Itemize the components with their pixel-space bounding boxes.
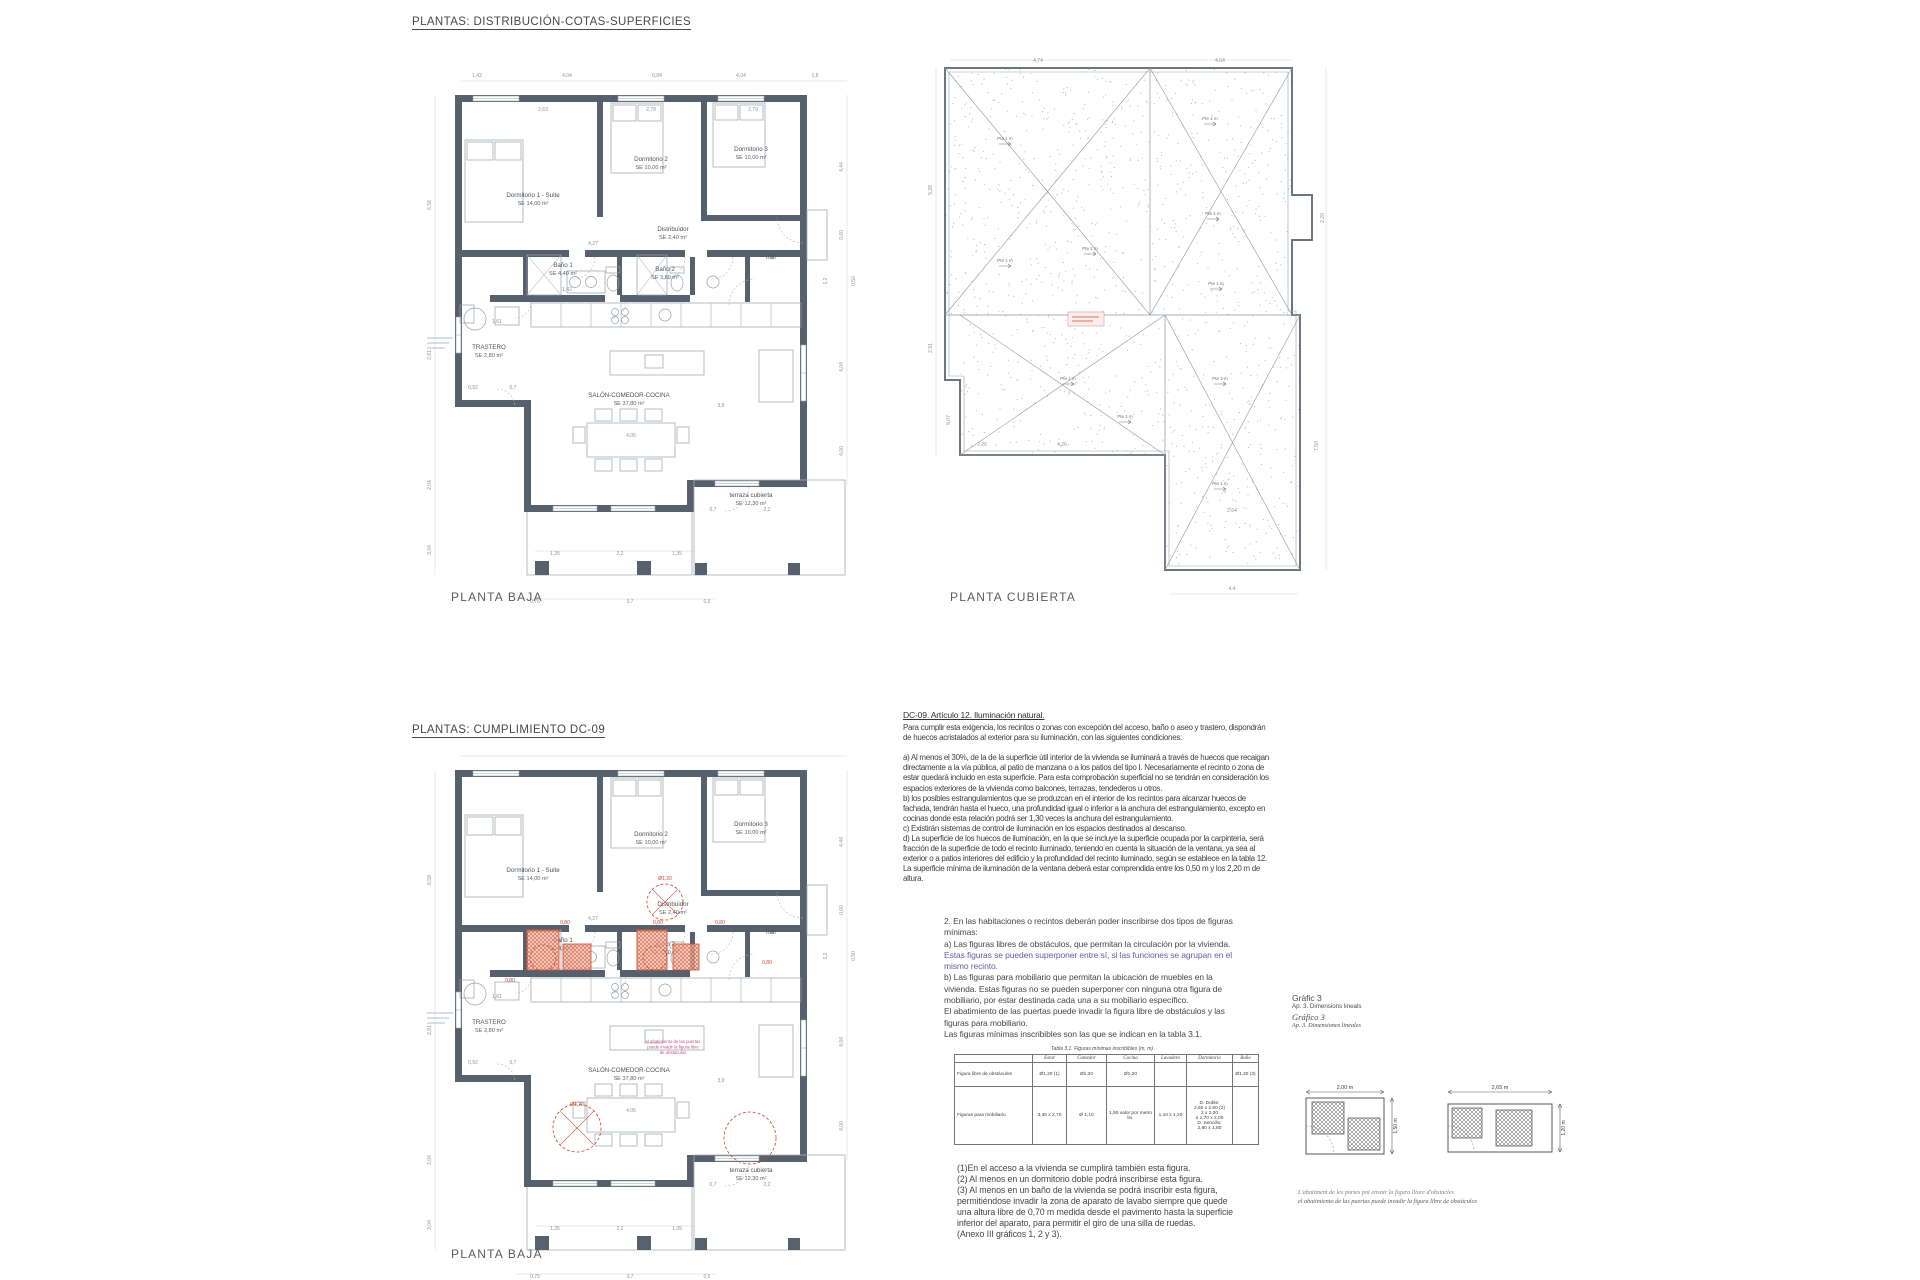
stipple-dot xyxy=(1186,168,1187,169)
stipple-dot xyxy=(1160,166,1161,167)
note-line: (3) Al menos en un baño de la vivienda s… xyxy=(957,1185,1291,1196)
dimension-label: 2,79 xyxy=(748,107,758,113)
roof-outline xyxy=(945,68,1312,570)
dc09-line: estar quedará incluido en esta superfici… xyxy=(903,773,1315,783)
stipple-dot xyxy=(1271,476,1272,477)
stipple-dot xyxy=(1136,144,1137,145)
stipple-dot xyxy=(1025,293,1026,294)
table-header: Estar xyxy=(1033,1055,1067,1063)
plan1-caption: PLANTA BAJA xyxy=(451,590,543,604)
room-name: Dormitorio 2 xyxy=(634,831,668,838)
stipple-dot xyxy=(1181,369,1182,370)
stipple-dot xyxy=(1157,229,1158,230)
stipple-dot xyxy=(1249,200,1250,201)
stipple-dot xyxy=(1242,212,1243,213)
stipple-dot xyxy=(1250,127,1251,128)
stipple-dot xyxy=(1125,291,1126,292)
table-header xyxy=(955,1055,1033,1063)
wall xyxy=(701,770,707,896)
stipple-dot xyxy=(1079,372,1080,373)
roof-hip-line xyxy=(1233,315,1301,443)
stipple-dot xyxy=(951,166,952,167)
stipple-dot xyxy=(1229,473,1230,474)
figuras-line: 2. En las habitaciones o recintos deberá… xyxy=(944,916,1282,927)
stipple-dot xyxy=(1127,350,1128,351)
stipple-dot xyxy=(1173,402,1174,403)
stipple-dot xyxy=(1294,456,1295,457)
stipple-dot xyxy=(1252,163,1253,164)
stipple-dot xyxy=(1176,532,1177,533)
stipple-dot xyxy=(1193,376,1194,377)
stipple-dot xyxy=(1214,398,1215,399)
stipple-dot xyxy=(1103,176,1104,177)
stipple-dot xyxy=(1257,289,1258,290)
roof-red-note-box xyxy=(1068,312,1104,326)
room-name: Baño 1 xyxy=(553,262,573,269)
stipple-dot xyxy=(1207,501,1208,502)
stipple-dot xyxy=(978,393,979,394)
stipple-dot xyxy=(1032,185,1033,186)
stipple-dot xyxy=(1164,421,1165,422)
stipple-dot xyxy=(1195,429,1196,430)
stipple-dot xyxy=(1189,451,1190,452)
stipple-dot xyxy=(1285,448,1286,449)
dimension-label: 3,04 xyxy=(427,1220,433,1230)
stipple-dot xyxy=(971,445,972,446)
stipple-dot xyxy=(1214,361,1215,362)
stipple-dot xyxy=(1106,127,1107,128)
stipple-dot xyxy=(1106,156,1107,157)
mobiliario-square xyxy=(1348,1118,1380,1150)
stipple-dot xyxy=(951,313,952,314)
stipple-dot xyxy=(1279,357,1280,358)
dimension-label: 1,2 xyxy=(823,277,829,284)
stipple-dot xyxy=(1068,191,1069,192)
stipple-dot xyxy=(1152,425,1153,426)
stipple-dot xyxy=(1069,391,1070,392)
stipple-dot xyxy=(1050,273,1051,274)
stipple-dot xyxy=(1229,393,1230,394)
stipple-dot xyxy=(1234,79,1235,80)
stipple-dot xyxy=(1057,149,1058,150)
stipple-dot xyxy=(1140,259,1141,260)
stipple-dot xyxy=(1044,327,1045,328)
dc09-line: a) Al menos el 30%, de la de la superfic… xyxy=(903,753,1315,763)
stipple-dot xyxy=(1038,449,1039,450)
figuras-line: Las figuras mínimas inscribibles son las… xyxy=(944,1029,1282,1040)
stipple-dot xyxy=(1142,292,1143,293)
mini-figures-drawing: 2,00 m1,50 m2,65 m1,20 m xyxy=(1298,1078,1582,1184)
stipple-dot xyxy=(1265,360,1266,361)
stipple-dot xyxy=(1017,362,1018,363)
stipple-dot xyxy=(1009,285,1010,286)
planta-cubierta-drawing: Pte 1 mPte 1 mPte 1 mPte 1 mPte 1 mPte 1… xyxy=(920,50,1340,610)
stipple-dot xyxy=(1094,448,1095,449)
wall xyxy=(800,95,807,487)
stipple-dot xyxy=(1224,527,1225,528)
furniture xyxy=(620,459,637,471)
stipple-dot xyxy=(976,251,977,252)
stipple-dot xyxy=(1034,158,1035,159)
stipple-dot xyxy=(1112,122,1113,123)
stipple-dot xyxy=(1152,259,1153,260)
furniture xyxy=(715,105,738,120)
stipple-dot xyxy=(1170,227,1171,228)
stipple-dot xyxy=(1269,151,1270,152)
stipple-dot xyxy=(1260,187,1261,188)
stipple-dot xyxy=(1001,384,1002,385)
stipple-dot xyxy=(1116,312,1117,313)
stipple-dot xyxy=(1262,127,1263,128)
stipple-dot xyxy=(1130,160,1131,161)
stipple-dot xyxy=(1212,456,1213,457)
stipple-dot xyxy=(1125,125,1126,126)
stipple-dot xyxy=(1272,297,1273,298)
stipple-dot xyxy=(1237,268,1238,269)
magenta-note-line: de obstáculos xyxy=(660,1050,687,1055)
stipple-dot xyxy=(1082,165,1083,166)
dimension-label: 1,61 xyxy=(492,319,502,325)
stipple-dot xyxy=(1047,332,1048,333)
stipple-dot xyxy=(960,213,961,214)
stipple-dot xyxy=(1209,557,1210,558)
stipple-dot xyxy=(1038,263,1039,264)
table-header: Comedor xyxy=(1067,1055,1107,1063)
stipple-dot xyxy=(1080,138,1081,139)
stipple-dot xyxy=(1277,547,1278,548)
slope-label: Pte 1 m xyxy=(1212,376,1228,381)
mobiliario-square xyxy=(1452,1108,1482,1138)
stipple-dot xyxy=(1226,72,1227,73)
stipple-dot xyxy=(1263,72,1264,73)
stipple-dot xyxy=(1170,555,1171,556)
stipple-dot xyxy=(1192,349,1193,350)
stipple-dot xyxy=(1059,153,1060,154)
dc09-line: c) Existirán sistemas de control de ilum… xyxy=(903,824,1315,834)
stipple-dot xyxy=(1179,405,1180,406)
furniture xyxy=(460,305,474,323)
stipple-dot xyxy=(1179,554,1180,555)
wall xyxy=(490,295,605,302)
stipple-dot xyxy=(1141,158,1142,159)
room-name: Distribuidor xyxy=(657,901,688,908)
stipple-dot xyxy=(1282,503,1283,504)
stipple-dot xyxy=(1247,402,1248,403)
figuras-line: Estas figuras se pueden superponer entre… xyxy=(944,950,1282,961)
wall xyxy=(800,770,807,1162)
stipple-dot xyxy=(963,157,964,158)
stipple-dot xyxy=(1042,180,1043,181)
stipple-dot xyxy=(1032,452,1033,453)
door-swing xyxy=(725,487,749,511)
stipple-dot xyxy=(1063,281,1064,282)
furniture xyxy=(467,817,493,835)
stipple-dot xyxy=(1284,257,1285,258)
stipple-dot xyxy=(1000,202,1001,203)
stipple-dot xyxy=(1144,180,1145,181)
notes-block: (1)En el acceso a la vivienda se cumplir… xyxy=(957,1163,1291,1240)
stipple-dot xyxy=(1209,530,1210,531)
stipple-dot xyxy=(1075,123,1076,124)
stipple-dot xyxy=(984,244,985,245)
stipple-dot xyxy=(1112,101,1113,102)
room-name: hall xyxy=(766,254,776,261)
furniture xyxy=(587,423,675,457)
stipple-dot xyxy=(1177,551,1178,552)
stipple-dot xyxy=(1262,123,1263,124)
furniture xyxy=(495,817,521,835)
stipple-dot xyxy=(1102,119,1103,120)
stipple-dot xyxy=(977,361,978,362)
stipple-dot xyxy=(989,291,990,292)
stipple-dot xyxy=(1209,101,1210,102)
dc09-line: cocinas donde esta relación podrá ser 1,… xyxy=(903,814,1315,824)
stipple-dot xyxy=(1268,75,1269,76)
fixture-circle xyxy=(612,984,619,991)
stipple-dot xyxy=(1182,318,1183,319)
stipple-dot xyxy=(961,144,962,145)
stipple-dot xyxy=(1279,558,1280,559)
stipple-dot xyxy=(1283,312,1284,313)
stipple-dot xyxy=(1216,454,1217,455)
roof-hip-line xyxy=(945,68,1048,192)
stipple-dot xyxy=(1172,115,1173,116)
stipple-dot xyxy=(1215,90,1216,91)
stipple-dot xyxy=(973,151,974,152)
stipple-dot xyxy=(1205,457,1206,458)
stipple-dot xyxy=(1036,258,1037,259)
stipple-dot xyxy=(1191,103,1192,104)
grafico-label: Gráfico 3 xyxy=(1292,1012,1361,1022)
stipple-dot xyxy=(1285,170,1286,171)
table-cell-line: Ø1,20 xyxy=(1109,1072,1152,1077)
stipple-dot xyxy=(1278,524,1279,525)
stipple-dot xyxy=(1248,401,1249,402)
stipple-dot xyxy=(1122,290,1123,291)
stipple-dot xyxy=(1148,323,1149,324)
stipple-dot xyxy=(1110,171,1111,172)
figuras-line: mobiliario, por estar destinada cada una… xyxy=(944,995,1282,1006)
stipple-dot xyxy=(1228,124,1229,125)
stipple-dot xyxy=(1121,406,1122,407)
stipple-dot xyxy=(1109,406,1110,407)
stipple-dot xyxy=(1286,367,1287,368)
stipple-dot xyxy=(1189,319,1190,320)
stipple-dot xyxy=(970,324,971,325)
stipple-dot xyxy=(1115,124,1116,125)
furniture xyxy=(620,1134,637,1146)
stipple-dot xyxy=(1166,100,1167,101)
room-area: SE 14,00 m² xyxy=(517,876,548,882)
stipple-dot xyxy=(1134,448,1135,449)
dc09-line: espacios exteriores de la vivienda como … xyxy=(903,784,1315,794)
stipple-dot xyxy=(1077,196,1078,197)
stipple-dot xyxy=(1230,227,1231,228)
stipple-dot xyxy=(1180,368,1181,369)
magenta-note-line: puede invadir la figura libre xyxy=(647,1045,699,1050)
plan-root: Dormitorio 1 - SuiteSE 14,00 m²Dormitori… xyxy=(427,756,857,1280)
stipple-dot xyxy=(1158,135,1159,136)
stipple-dot xyxy=(1072,119,1073,120)
door-swing xyxy=(729,954,755,980)
stipple-dot xyxy=(1240,343,1241,344)
room-area: SE 12,30 m² xyxy=(735,501,766,507)
roof-hip-line xyxy=(1233,443,1301,571)
stipple-dot xyxy=(1291,481,1292,482)
porch-column xyxy=(695,563,707,575)
stipple-dot xyxy=(1234,419,1235,420)
mini-captions: L'abatiment de les portes pot envair la … xyxy=(1298,1188,1582,1206)
room-name: hall xyxy=(766,929,776,936)
furniture xyxy=(613,105,636,121)
dimension-label: 2,81 xyxy=(427,350,433,360)
stipple-dot xyxy=(985,139,986,140)
stipple-dot xyxy=(986,158,987,159)
stipple-dot xyxy=(1074,275,1075,276)
stipple-dot xyxy=(1219,243,1220,244)
stipple-dot xyxy=(1102,189,1103,190)
table-cell: Ø1,20 (1) xyxy=(1033,1063,1067,1087)
stipple-dot xyxy=(1088,389,1089,390)
slope-arrow xyxy=(1084,252,1096,256)
stipple-dot xyxy=(1085,158,1086,159)
stipple-dot xyxy=(1030,259,1031,260)
stipple-dot xyxy=(1079,226,1080,227)
stipple-dot xyxy=(1165,198,1166,199)
figura-highlight-hatch xyxy=(673,944,699,970)
stipple-dot xyxy=(1160,168,1161,169)
stipple-dot xyxy=(1064,391,1065,392)
stipple-dot xyxy=(1023,159,1024,160)
stipple-dot xyxy=(1059,389,1060,390)
furniture xyxy=(715,780,738,795)
stipple-dot xyxy=(950,205,951,206)
stipple-dot xyxy=(951,256,952,257)
room-area: SE 10,00 m² xyxy=(635,840,666,846)
stipple-dot xyxy=(1284,193,1285,194)
stipple-dot xyxy=(1068,132,1069,133)
stipple-dot xyxy=(1172,261,1173,262)
porch-column xyxy=(637,1236,651,1250)
stipple-dot xyxy=(1247,367,1248,368)
dimension-label: 2,64 xyxy=(1227,508,1237,514)
stipple-dot xyxy=(1153,313,1154,314)
furniture xyxy=(587,1098,675,1132)
stipple-dot xyxy=(1262,193,1263,194)
stipple-dot xyxy=(1202,192,1203,193)
dimension-label: 3,9 xyxy=(718,403,725,409)
stipple-dot xyxy=(1055,170,1056,171)
stipple-dot xyxy=(1008,69,1009,70)
stipple-dot xyxy=(1186,84,1187,85)
stipple-dot xyxy=(1004,389,1005,390)
stipple-dot xyxy=(1245,427,1246,428)
stipple-dot xyxy=(1181,503,1182,504)
stipple-dot xyxy=(1038,275,1039,276)
roof-hip-line xyxy=(945,192,1048,316)
sheet1-title: PLANTAS: DISTRIBUCIÓN-COTAS-SUPERFICIES xyxy=(412,16,691,30)
stipple-dot xyxy=(1241,88,1242,89)
wall xyxy=(707,890,807,896)
stipple-dot xyxy=(1238,241,1239,242)
stipple-dot xyxy=(974,297,975,298)
dimension-label: 1,35 xyxy=(672,551,682,557)
stipple-dot xyxy=(965,394,966,395)
stipple-dot xyxy=(1246,182,1247,183)
stipple-dot xyxy=(1105,124,1106,125)
stipple-dot xyxy=(1128,100,1129,101)
stipple-dot xyxy=(1227,457,1228,458)
stipple-dot xyxy=(1022,303,1023,304)
stipple-dot xyxy=(1102,442,1103,443)
stipple-dot xyxy=(1172,297,1173,298)
stipple-dot xyxy=(1083,396,1084,397)
dimension-label: 0,60 xyxy=(839,905,845,915)
stipple-dot xyxy=(1040,366,1041,367)
stipple-dot xyxy=(1187,85,1188,86)
stipple-dot xyxy=(1184,446,1185,447)
stipple-dot xyxy=(1054,108,1055,109)
stipple-dot xyxy=(1113,193,1114,194)
stipple-dot xyxy=(1290,482,1291,483)
stipple-dot xyxy=(1076,124,1077,125)
stipple-dot xyxy=(973,239,974,240)
stipple-dot xyxy=(1283,324,1284,325)
stipple-dot xyxy=(1216,312,1217,313)
stipple-dot xyxy=(1207,523,1208,524)
room-area: SE 37,80 m² xyxy=(613,1076,644,1082)
stipple-dot xyxy=(1235,292,1236,293)
stipple-dot xyxy=(1234,309,1235,310)
stipple-dot xyxy=(1239,527,1240,528)
stipple-dot xyxy=(1290,179,1291,180)
roof-caption: PLANTA CUBIERTA xyxy=(950,590,1076,604)
stipple-dot xyxy=(1189,172,1190,173)
furniture xyxy=(595,459,612,471)
stipple-dot xyxy=(1208,432,1209,433)
stipple-dot xyxy=(972,217,973,218)
door-swing xyxy=(725,1162,749,1186)
stipple-dot xyxy=(1074,429,1075,430)
table-cell: Ø 1,10 xyxy=(1067,1087,1107,1145)
stipple-dot xyxy=(1162,415,1163,416)
stipple-dot xyxy=(1044,212,1045,213)
stipple-dot xyxy=(990,116,991,117)
stipple-dot xyxy=(1185,471,1186,472)
stipple-dot xyxy=(1050,156,1051,157)
stipple-dot xyxy=(1229,275,1230,276)
stipple-dot xyxy=(951,251,952,252)
table-cell-line: 2,90 x 1,80 xyxy=(1189,1126,1230,1131)
stipple-dot xyxy=(1166,138,1167,139)
stipple-dot xyxy=(975,179,976,180)
stipple-dot xyxy=(1189,425,1190,426)
stipple-dot xyxy=(1224,492,1225,493)
stipple-dot xyxy=(1048,200,1049,201)
stipple-dot xyxy=(1178,246,1179,247)
dc09-line: d) La superficie de los huecos de ilumin… xyxy=(903,834,1315,844)
stipple-dot xyxy=(1247,321,1248,322)
stipple-dot xyxy=(1259,305,1260,306)
stipple-dot xyxy=(993,352,994,353)
stipple-dot xyxy=(1099,404,1100,405)
stipple-dot xyxy=(1281,181,1282,182)
stipple-dot xyxy=(1221,444,1222,445)
wall xyxy=(597,95,603,217)
stipple-dot xyxy=(1214,69,1215,70)
stipple-dot xyxy=(994,344,995,345)
stipple-dot xyxy=(1256,209,1257,210)
